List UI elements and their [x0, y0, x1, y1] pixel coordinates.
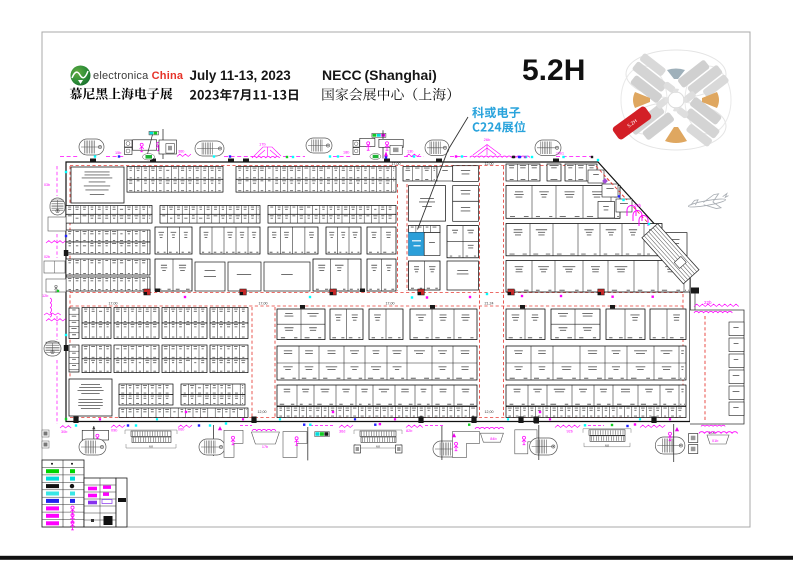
svg-text:17,00: 17,00 [259, 302, 268, 306]
svg-text:5.2H: 5.2H [522, 54, 585, 87]
svg-text:17,00: 17,00 [392, 162, 401, 166]
svg-text:02b: 02b [44, 255, 50, 259]
svg-text:06b: 06b [178, 428, 184, 432]
svg-text:July 11-13, 2023: July 11-13, 2023 [190, 68, 291, 83]
svg-text:18b: 18b [343, 151, 349, 155]
svg-text:03b: 03b [44, 183, 50, 187]
svg-text:36d: 36d [339, 430, 345, 434]
svg-text:36b: 36b [178, 150, 184, 154]
svg-text:09b: 09b [111, 429, 117, 433]
svg-text:M8: M8 [376, 445, 380, 449]
svg-text:M8: M8 [605, 443, 609, 447]
svg-text:17b: 17b [259, 142, 266, 147]
svg-text:17,00: 17,00 [109, 302, 118, 306]
svg-text:12,00: 12,00 [485, 162, 494, 166]
svg-text:M8: M8 [149, 445, 153, 449]
svg-text:82b: 82b [406, 429, 412, 433]
svg-text:30b: 30b [61, 430, 67, 434]
svg-text:13b: 13b [407, 150, 413, 154]
svg-text:17,00: 17,00 [386, 302, 395, 306]
svg-text:92b: 92b [567, 430, 573, 434]
svg-text:15b1: 15b1 [556, 152, 564, 156]
svg-text:NECC (Shanghai): NECC (Shanghai) [322, 67, 437, 83]
svg-text:electronica China: electronica China [93, 70, 184, 82]
svg-text:12,00: 12,00 [485, 410, 494, 414]
svg-text:12,00: 12,00 [258, 410, 267, 414]
svg-text:21,24: 21,24 [485, 302, 494, 306]
svg-text:01b: 01b [712, 439, 718, 443]
svg-text:17b: 17b [262, 445, 268, 449]
svg-text:12b: 12b [42, 294, 48, 298]
svg-text:84b: 84b [490, 437, 496, 441]
svg-text:15b: 15b [115, 151, 121, 155]
svg-text:26b: 26b [484, 137, 491, 142]
svg-text:76b: 76b [634, 203, 642, 208]
